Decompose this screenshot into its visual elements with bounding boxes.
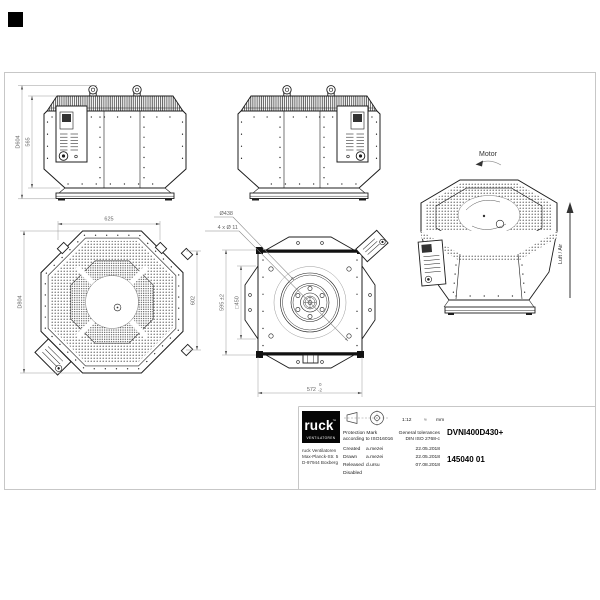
cable-gland <box>303 355 318 363</box>
svg-text:d.ursu: d.ursu <box>366 462 380 468</box>
svg-text:Protection Mark: Protection Mark <box>343 430 378 436</box>
registration-mark <box>8 12 23 27</box>
dim-text-d804: D804 <box>18 295 24 308</box>
company-logo: ruck ™ VENTILATOREN <box>302 411 340 443</box>
airflow-arrow-icon <box>567 202 574 298</box>
rotation-arrow-icon <box>476 161 502 167</box>
view-isometric: Motor <box>418 151 573 315</box>
svg-text:a.mezei: a.mezei <box>366 446 383 452</box>
title-block: ruck ™ VENTILATOREN ruck Ventilatoren Ma… <box>302 410 504 476</box>
part-number: DVNI400D430+ <box>447 428 504 437</box>
dim-text-565: 565 <box>26 137 32 146</box>
motor-label: Motor <box>479 151 498 158</box>
protection-mark: Protection Mark according to ISO16016 <box>343 430 393 442</box>
impeller-opening <box>458 196 520 235</box>
svg-text:ruck Ventilatoren: ruck Ventilatoren <box>302 448 337 453</box>
engineering-drawing: D604 565 Motor <box>0 0 600 600</box>
svg-text:General tolerances: General tolerances <box>399 430 441 436</box>
svg-text:a.mezei: a.mezei <box>366 454 383 460</box>
view-side-rear <box>238 86 380 201</box>
dim-text-595: 595 ±2 <box>220 294 226 311</box>
view-side-front: D604 565 <box>16 86 187 201</box>
dim-text-625: 625 <box>104 217 113 223</box>
document-number: 145040 01 <box>447 455 485 464</box>
projection-symbol-icon <box>344 410 389 426</box>
svg-text:Created: Created <box>343 446 361 452</box>
drawing-sheet: D604 565 Motor <box>0 0 600 600</box>
view-bottom: Ø438 4 x Ø 11 595 ±2 □450 572 0 <box>205 211 388 397</box>
motor-opening <box>86 276 139 329</box>
svg-text:D-97944 Boxberg: D-97944 Boxberg <box>302 460 338 465</box>
svg-text:22.05.2018: 22.05.2018 <box>416 454 441 460</box>
mass-symbol: ≈ <box>424 418 427 423</box>
svg-text:Disabled: Disabled <box>343 470 362 476</box>
dim-tol-upper: 0 <box>319 382 322 387</box>
svg-text:22.05.2018: 22.05.2018 <box>416 446 441 452</box>
svg-text:Ø438: Ø438 <box>220 211 233 217</box>
logo-subtitle: VENTILATOREN <box>307 436 336 440</box>
logo-tm: ™ <box>333 419 337 423</box>
logo-brand: ruck <box>304 418 334 433</box>
dim-text-602: 602 <box>191 296 197 305</box>
svg-text:DIN ISO 2768-c: DIN ISO 2768-c <box>405 436 440 442</box>
company-address: ruck Ventilatoren Max-Planck-Str. 5 D-97… <box>302 448 339 465</box>
dim-side-602: 602 <box>186 251 201 350</box>
svg-text:according to ISO16016: according to ISO16016 <box>343 436 393 442</box>
svg-text:Max-Planck-Str. 5: Max-Planck-Str. 5 <box>302 454 339 459</box>
base-plate <box>444 300 535 315</box>
dim-tol-lower: -2 <box>318 388 322 393</box>
svg-text:07.08.2018: 07.08.2018 <box>416 462 441 468</box>
svg-text:Released: Released <box>343 462 364 468</box>
airflow-label: Luft / Air <box>558 244 564 264</box>
terminal-box <box>418 240 446 286</box>
dim-text-572: 572 <box>307 387 316 393</box>
dim-text-d604: D604 <box>16 135 22 148</box>
unit-value: mm <box>436 418 444 423</box>
svg-text:4 x Ø 11: 4 x Ø 11 <box>218 225 238 231</box>
scale-value: 1:12 <box>402 417 412 423</box>
revision-table: Created a.mezei 22.05.2018 Drawn a.mezei… <box>343 446 440 476</box>
general-tolerances: General tolerances DIN ISO 2768-c <box>399 430 441 442</box>
dim-text-450: □450 <box>235 296 241 309</box>
view-top: 625 D804 602 <box>18 217 202 376</box>
svg-text:Drawn: Drawn <box>343 454 357 460</box>
